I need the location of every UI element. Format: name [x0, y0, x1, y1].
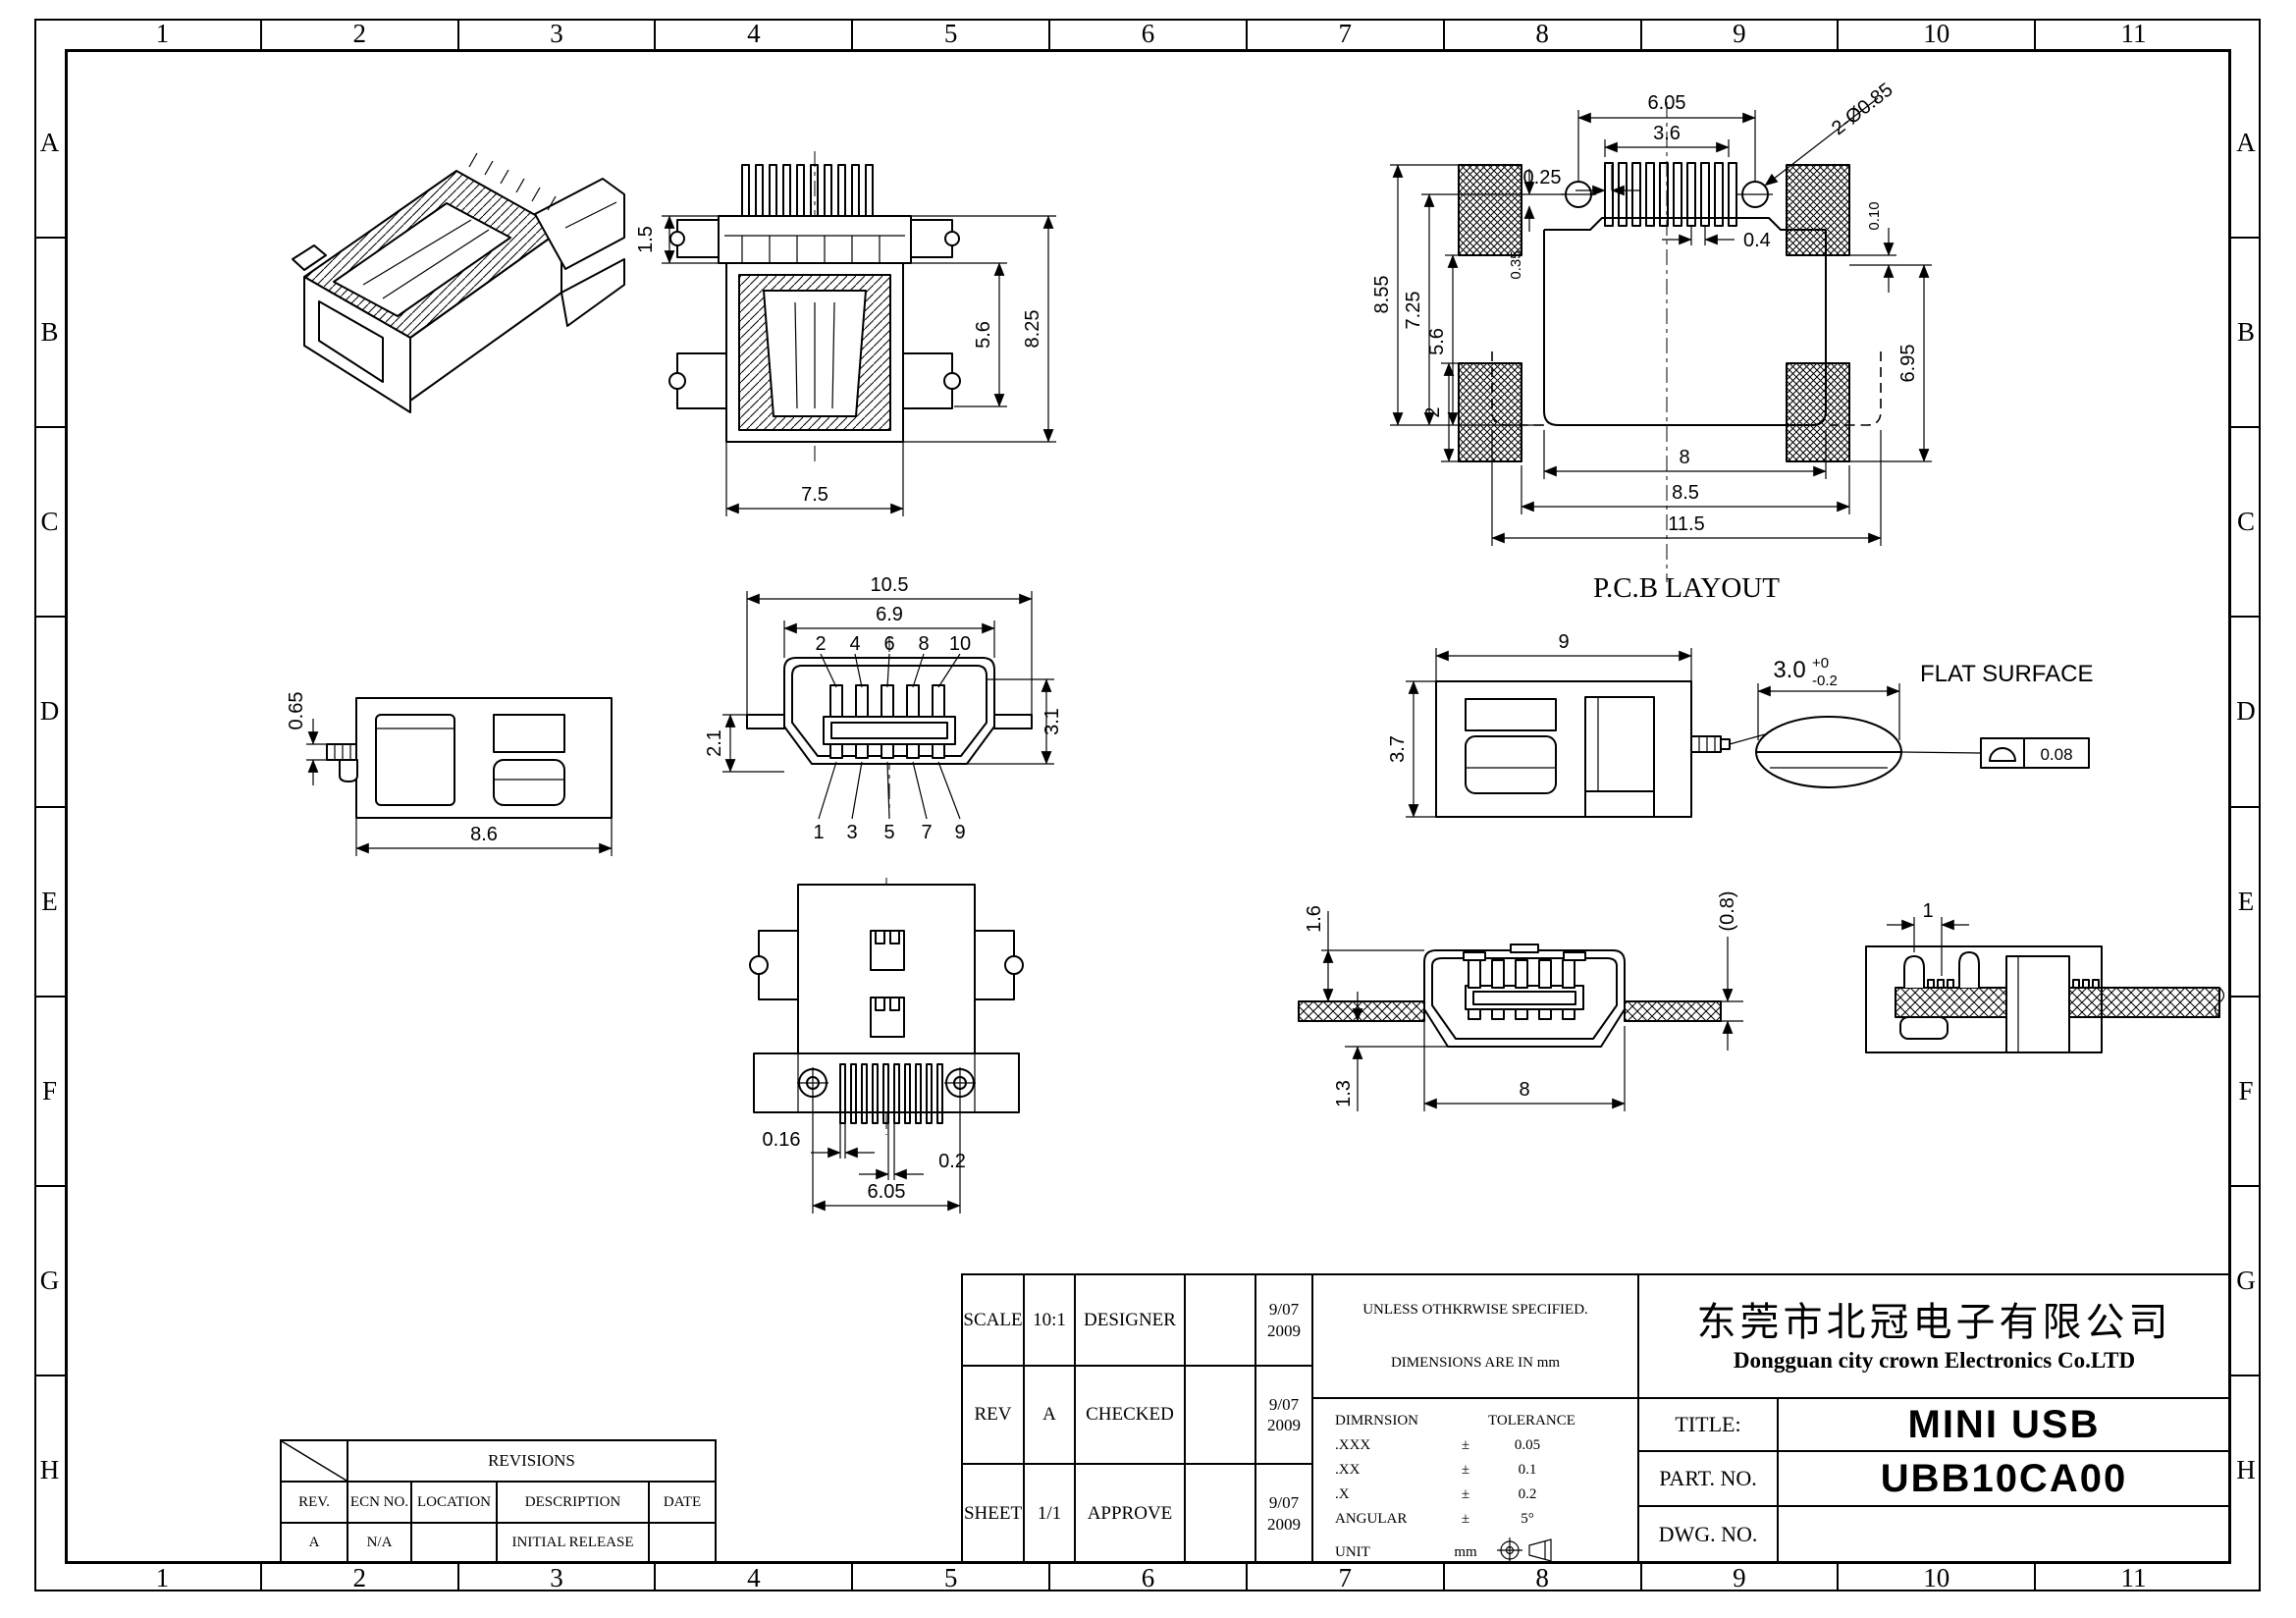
zone-label: 10 [1837, 19, 2034, 49]
title-label: TITLE: [1637, 1397, 1779, 1452]
rev-value: A [1023, 1365, 1076, 1465]
tol-header-tolerance: TOLERANCE [1488, 1413, 1567, 1429]
zone-label: 3 [457, 19, 655, 49]
sheet-label: SHEET [961, 1463, 1025, 1564]
title-block: SCALE 10:1 DESIGNER 9/07 2009 REV A CHEC… [961, 1273, 2231, 1564]
dim-pcb-holes: 2-Ø0.85 [1828, 79, 1896, 139]
dim-pcb-pad-span: 3.6 [1653, 123, 1681, 144]
revision-row-location [410, 1522, 498, 1564]
zone-label: 9 [1640, 1564, 1838, 1591]
tol-pm: ± [1443, 1437, 1488, 1454]
pcb-layout-label: P.C.B LAYOUT [1593, 572, 1780, 604]
dwg-no-value [1777, 1505, 2231, 1564]
zone-strip-top: 1234567891011 [65, 19, 2231, 49]
flat-surface-note: FLAT SURFACE [1920, 661, 2093, 687]
dim-pcb-h-inner: 7.25 [1403, 292, 1424, 330]
date-line: 2009 [1267, 1321, 1301, 1341]
company-name-cn: 东莞市北冠电子有限公司 [1697, 1298, 2172, 1347]
zone-label: D [34, 616, 65, 805]
notes-line-1: UNLESS OTHKRWISE SPECIFIED. [1362, 1302, 1588, 1319]
pin-number: 1 [813, 822, 824, 843]
zone-label: 5 [851, 19, 1048, 49]
pcb-dims: 6.05 3.6 0.25 0.4 2-Ø0.85 8.55 7.25 5.6 [1371, 79, 1932, 546]
approve-label: APPROVE [1074, 1463, 1186, 1564]
tol-dim: .X [1321, 1486, 1443, 1503]
revisions-header-rev: REV. [280, 1481, 348, 1524]
dim-flat-plus: +0 [1812, 655, 1829, 672]
zone-label: 11 [2034, 1564, 2231, 1591]
dim-pcb-h-right: 6.95 [1897, 345, 1919, 383]
revisions-header-description: DESCRIPTION [496, 1481, 650, 1524]
checked-label: CHECKED [1074, 1365, 1186, 1465]
tolerance-table: DIMRNSION TOLERANCE .XXX ± 0.05 .XX ± 0.… [1311, 1397, 1639, 1564]
mounted-body [1866, 946, 2224, 1052]
bottom-view: 0.16 0.2 6.05 [724, 870, 1053, 1241]
company-box: 东莞市北冠电子有限公司 Dongguan city crown Electron… [1637, 1273, 2231, 1399]
zone-label: F [34, 996, 65, 1185]
pcb-layout-view: 6.05 3.6 0.25 0.4 2-Ø0.85 8.55 7.25 5.6 [1343, 47, 2002, 648]
dim-rear-width: 7.5 [801, 484, 828, 506]
date-line: 9/07 [1269, 1394, 1299, 1415]
dim-flat-value: 3.0 [1773, 657, 1805, 683]
pin-number: 8 [918, 633, 929, 655]
dim-front-left: 2.1 [704, 729, 725, 757]
dwg-no-label: DWG. NO. [1637, 1505, 1779, 1564]
zone-label: 6 [1048, 1564, 1246, 1591]
tol-dim: .XX [1321, 1462, 1443, 1479]
zone-label: 6 [1048, 19, 1246, 49]
zone-label: 2 [260, 19, 457, 49]
pin-number: 10 [949, 633, 971, 655]
zone-label: 8 [1443, 19, 1640, 49]
zone-strip-bottom: 1234567891011 [65, 1564, 2231, 1591]
zone-label: 4 [654, 1564, 851, 1591]
zone-label: C [34, 426, 65, 616]
zone-label: D [2231, 616, 2261, 805]
pin-number: 5 [883, 822, 894, 843]
dim-rear-body: 5.6 [973, 321, 994, 349]
third-angle-projection-icon [1488, 1536, 1567, 1570]
tol-val: 0.2 [1488, 1486, 1567, 1503]
dim-sideright-length: 9 [1558, 631, 1569, 653]
front-view: 2 4 6 8 10 1 3 5 7 9 6.9 10.5 2.1 3 [703, 571, 1076, 842]
pin-number: 2 [815, 633, 826, 655]
dim-section-width: 8 [1519, 1079, 1529, 1101]
side-right-body [1436, 681, 1730, 817]
section-shell [1424, 944, 1625, 1047]
dim-sideright-height: 3.7 [1387, 735, 1409, 763]
rear-pins [742, 165, 873, 216]
zone-label: G [34, 1185, 65, 1375]
zone-label: 1 [65, 19, 260, 49]
dim-pcb-offset: 0.25 [1523, 167, 1562, 189]
flatness-value: 0.08 [2040, 745, 2072, 764]
notes-line-2: DIMENSIONS ARE IN mm [1391, 1355, 1560, 1372]
zone-label: 4 [654, 19, 851, 49]
zone-label: C [2231, 426, 2261, 616]
side-view-left: 0.65 8.6 [283, 664, 648, 868]
pin-number: 7 [921, 822, 932, 843]
general-notes: UNLESS OTHKRWISE SPECIFIED. DIMENSIONS A… [1311, 1273, 1639, 1399]
zone-label: A [34, 49, 65, 237]
revisions-header-location: LOCATION [410, 1481, 498, 1524]
bottom-dims: 0.16 0.2 6.05 [763, 1099, 966, 1213]
dim-front-overall: 10.5 [871, 574, 909, 596]
zone-label: G [2231, 1185, 2261, 1375]
dim-pcb-offset2: 0.35 [1508, 250, 1524, 279]
zone-label: H [2231, 1375, 2261, 1564]
zone-label: 7 [1246, 19, 1443, 49]
zone-label: H [34, 1375, 65, 1564]
pin-number: 3 [846, 822, 857, 843]
flat-surface-detail: 3.0 +0 -0.2 FLAT SURFACE 0.08 [1730, 655, 2093, 787]
company-name-en: Dongguan city crown Electronics Co.LTD [1734, 1347, 2135, 1375]
tol-header-dimension: DIMRNSION [1321, 1413, 1443, 1429]
zone-label: 11 [2034, 19, 2231, 49]
dim-pcb-gap: 0.10 [1866, 201, 1883, 230]
pin-number: 4 [849, 633, 860, 655]
designer-signature [1184, 1273, 1256, 1367]
zone-label: 1 [65, 1564, 260, 1591]
dim-section-pcb: (0.8) [1717, 890, 1738, 931]
dim-sideleft-pin: 0.65 [286, 692, 307, 730]
dim-front-right: 3.1 [1041, 708, 1063, 735]
zone-label: 3 [457, 1564, 655, 1591]
zone-label: B [2231, 237, 2261, 426]
zone-strip-left: ABCDEFGH [34, 49, 65, 1564]
tol-val: 0.05 [1488, 1437, 1567, 1454]
designer-date: 9/07 2009 [1255, 1273, 1313, 1367]
iso-connector-body [293, 153, 624, 412]
tol-dim: ANGULAR [1321, 1511, 1443, 1528]
dim-pcb-w-mid: 8.5 [1672, 482, 1699, 504]
dim-bottom-pin-w: 0.16 [763, 1129, 801, 1151]
dim-sideleft-length: 8.6 [470, 824, 498, 845]
section-view: 1.6 (0.8) 1.3 8 [1274, 854, 1775, 1151]
mounted-view: 1 [1842, 899, 2249, 1086]
unit-label: UNIT [1321, 1544, 1443, 1561]
scale-value: 10:1 [1023, 1273, 1076, 1367]
dim-pcb-pad-h: 2 [1422, 406, 1444, 417]
tol-val: 0.1 [1488, 1462, 1567, 1479]
tol-val: 5° [1488, 1511, 1567, 1528]
approve-date: 9/07 2009 [1255, 1463, 1313, 1564]
spacer [1443, 1413, 1488, 1429]
revisions-header-date: DATE [648, 1481, 717, 1524]
dim-flat-minus: -0.2 [1812, 673, 1838, 689]
revision-row-ecn: N/A [347, 1522, 412, 1564]
dim-rear-cap: 1.5 [635, 226, 657, 253]
scale-label: SCALE [961, 1273, 1025, 1367]
side-left-body [327, 698, 612, 818]
revisions-table: REVISIONS REV. ECN NO. LOCATION DESCRIPT… [280, 1439, 717, 1564]
zone-strip-right: ABCDEFGH [2231, 49, 2261, 1564]
isometric-view [236, 110, 638, 475]
dim-bottom-gap: 0.2 [938, 1151, 966, 1172]
revisions-banner: REVISIONS [347, 1439, 717, 1483]
date-line: 2009 [1267, 1514, 1301, 1535]
designer-label: DESIGNER [1074, 1273, 1186, 1367]
dim-pcb-hole-span: 6.05 [1648, 92, 1686, 114]
zone-label: E [34, 806, 65, 996]
zone-label: 10 [1837, 1564, 2034, 1591]
revision-row-date [648, 1522, 717, 1564]
zone-label: 9 [1640, 19, 1838, 49]
part-no-label: PART. NO. [1637, 1450, 1779, 1507]
zone-label: A [2231, 49, 2261, 237]
date-line: 2009 [1267, 1415, 1301, 1435]
zone-label: 5 [851, 1564, 1048, 1591]
tol-dim: .XXX [1321, 1437, 1443, 1454]
date-line: 9/07 [1269, 1492, 1299, 1513]
revision-row-rev: A [280, 1522, 348, 1564]
tol-pm: ± [1443, 1462, 1488, 1479]
unit-value: mm [1443, 1544, 1488, 1561]
side-view-right: 9 3.7 3.0 +0 -0.2 FLAT SURFACE 0.08 [1392, 624, 2094, 838]
drawing-sheet: 1234567891011 1234567891011 ABCDEFGH ABC… [0, 0, 2296, 1618]
front-shell [747, 658, 1032, 764]
dim-bottom-span: 6.05 [868, 1181, 906, 1203]
dim-section-top: 1.6 [1304, 905, 1325, 933]
revisions-header-ecn: ECN NO. [347, 1481, 412, 1524]
checked-date: 9/07 2009 [1255, 1365, 1313, 1465]
rear-view: 1.5 5.6 8.25 7.5 [609, 126, 1158, 569]
revisions-diagonal-cell [280, 1439, 348, 1483]
dim-pcb-h-overall: 8.55 [1371, 276, 1393, 314]
approve-signature [1184, 1463, 1256, 1564]
title-value: MINI USB [1777, 1397, 2231, 1452]
dim-section-bottom: 1.3 [1333, 1080, 1355, 1107]
part-no-value: UBB10CA00 [1777, 1450, 2231, 1507]
tol-pm: ± [1443, 1486, 1488, 1503]
date-line: 9/07 [1269, 1299, 1299, 1320]
rear-body [669, 216, 960, 442]
bottom-body [750, 885, 1023, 1123]
dim-pcb-h-pads: 5.6 [1426, 328, 1448, 355]
dim-front-shell: 6.9 [876, 604, 903, 625]
revision-row-description: INITIAL RELEASE [496, 1522, 650, 1564]
tol-pm: ± [1443, 1511, 1488, 1528]
zone-label: 2 [260, 1564, 457, 1591]
dim-pcb-w-overall: 11.5 [1668, 513, 1704, 535]
dim-pcb-w-inner: 8 [1679, 447, 1689, 468]
pin-number: 6 [883, 633, 894, 655]
dim-rear-overall: 8.25 [1022, 310, 1043, 349]
sheet-value: 1/1 [1023, 1463, 1076, 1564]
rev-label: REV [961, 1365, 1025, 1465]
dim-mounted-pitch: 1 [1922, 900, 1933, 922]
pin-number: 9 [954, 822, 965, 843]
dim-pcb-pitch: 0.4 [1743, 230, 1771, 251]
zone-label: B [34, 237, 65, 426]
pcb-pads [1459, 163, 1849, 461]
checked-signature [1184, 1365, 1256, 1465]
